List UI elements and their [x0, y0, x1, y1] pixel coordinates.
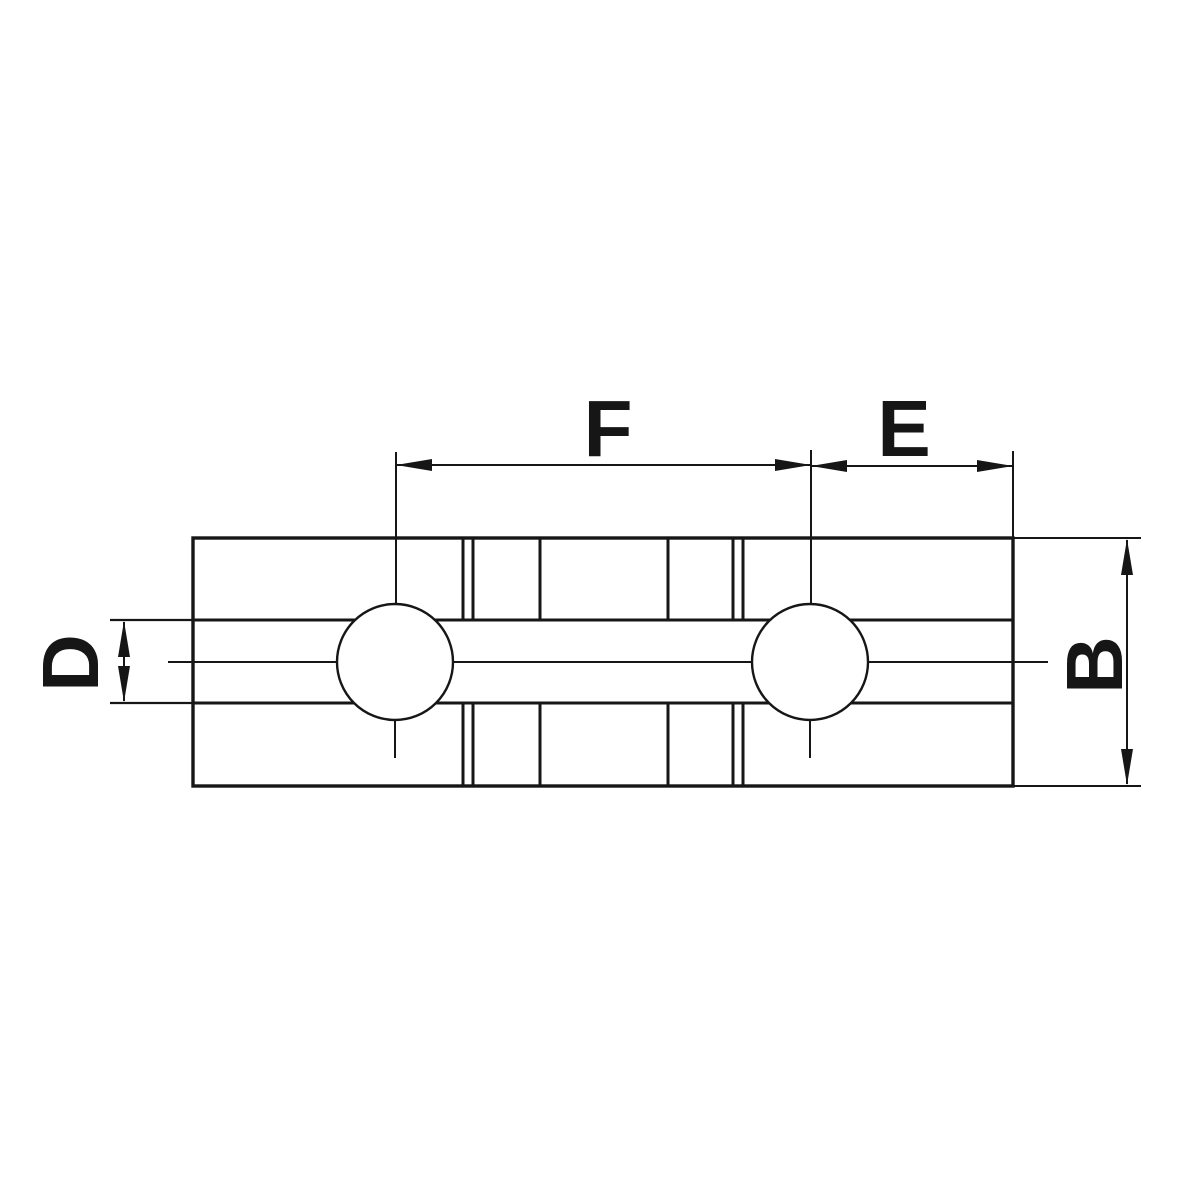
arrowheads-group	[118, 459, 1133, 785]
dim-label-b: B	[1050, 636, 1139, 694]
dim-label-f: F	[584, 384, 633, 473]
arrowhead	[775, 459, 811, 471]
geometry-group	[110, 450, 1141, 786]
technical-drawing: F E D B	[0, 0, 1200, 1200]
left-bore-hole	[337, 604, 453, 720]
arrowhead	[118, 666, 130, 702]
drawing-canvas: F E D B	[0, 0, 1200, 1200]
arrowhead	[977, 460, 1013, 472]
arrowhead	[1121, 749, 1133, 785]
dim-label-d: D	[26, 634, 115, 692]
right-bore-hole	[752, 604, 868, 720]
dim-label-e: E	[877, 384, 930, 473]
arrowhead	[1121, 539, 1133, 575]
arrowhead	[811, 460, 847, 472]
arrowhead	[118, 621, 130, 657]
arrowhead	[396, 459, 432, 471]
